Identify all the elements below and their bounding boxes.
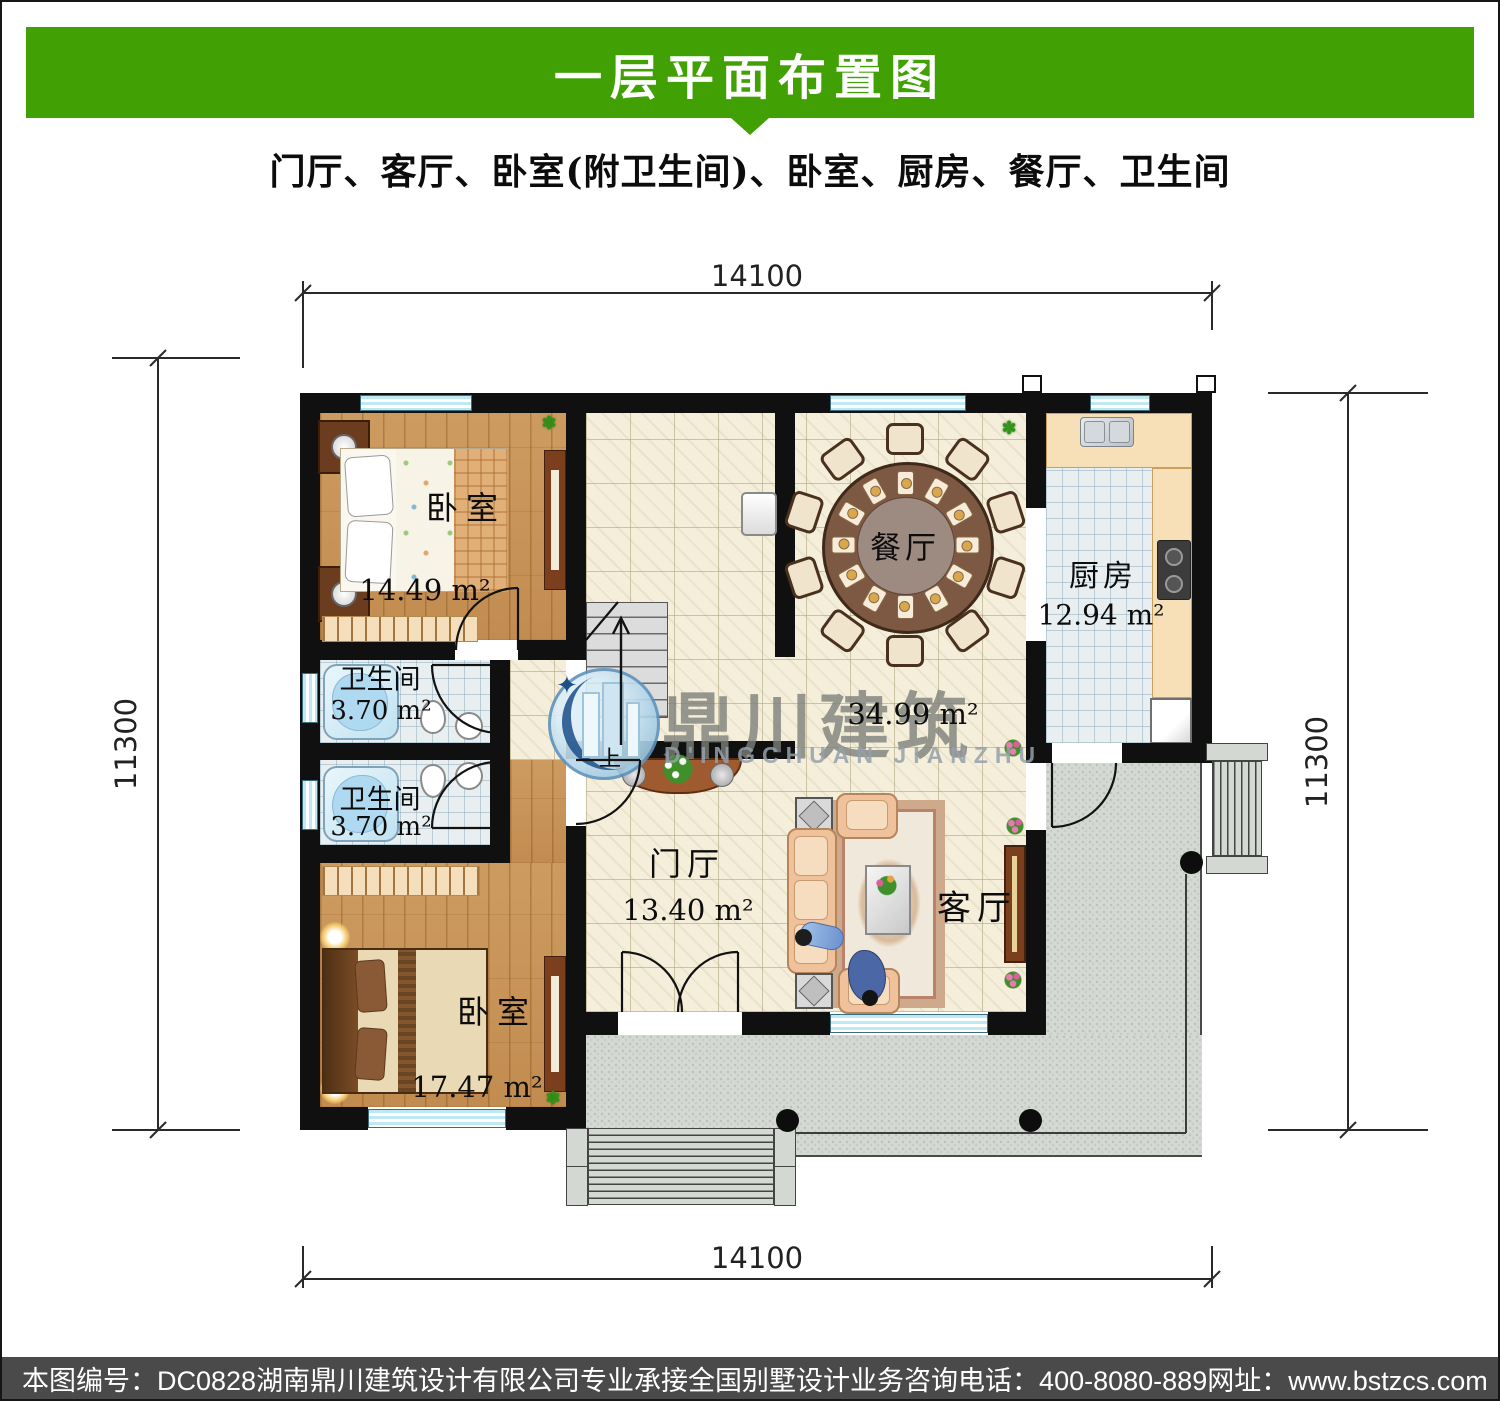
header-bar: 一层平面布置图	[26, 27, 1474, 118]
place-setting	[897, 471, 914, 495]
bedroom2-label: 卧室	[457, 987, 537, 1033]
flower-icon	[1006, 817, 1024, 835]
east-steps	[1212, 761, 1262, 856]
footer-sheet-number: 本图编号：DC0828	[22, 1359, 256, 1398]
pilaster-2	[1196, 375, 1216, 393]
entry-steps-block-right	[774, 1128, 796, 1206]
bath2-label: 卫生间	[340, 778, 421, 817]
entry-steps	[588, 1128, 774, 1205]
bath2-window	[302, 780, 318, 830]
footer-company: 湖南鼎川建筑设计有限公司专业承接全国别墅设计业务	[256, 1359, 904, 1398]
pilaster-1	[1022, 375, 1042, 393]
wall-living-east	[1026, 830, 1046, 1035]
bath1-area: 3.70 m²	[330, 696, 431, 726]
bed-pillow-1	[344, 454, 394, 517]
plant-icon: ✽	[541, 414, 556, 432]
bedroom1-window	[360, 395, 472, 411]
living-label: 客厅	[937, 881, 1017, 930]
tv-cabinet-bedroom2-panel	[551, 976, 559, 1072]
bed-2-pillow-2	[354, 1027, 388, 1081]
watermark-en: D'INGCHUAN JIANZHU	[664, 742, 1042, 769]
wall-south-a	[566, 1012, 618, 1035]
footer-bar: 本图编号：DC0828 湖南鼎川建筑设计有限公司专业承接全国别墅设计业务 咨询电…	[2, 1357, 1498, 1399]
plant-icon: ✽	[545, 1089, 560, 1107]
terrace-column	[1019, 1109, 1042, 1132]
armchair-top-cushion	[846, 800, 888, 830]
wall-south-c	[988, 1012, 1046, 1035]
place-setting	[831, 537, 855, 554]
wall-bath-divider-2	[300, 845, 510, 863]
wall-bedroom2-east	[566, 826, 586, 1130]
entry-steps-block-left	[566, 1128, 588, 1206]
wall-bath-divider-1	[300, 743, 510, 760]
stove-burner-1	[1165, 548, 1183, 566]
fridge	[1150, 698, 1192, 744]
entry-steps-block-right-split	[774, 1166, 796, 1167]
tv-cabinet-bedroom1-panel	[551, 470, 559, 570]
bath1-label: 卫生间	[340, 658, 421, 697]
wall-west	[300, 393, 320, 1130]
wall-dining-west	[775, 413, 795, 657]
dining-window	[830, 395, 966, 411]
entry-steps-block-left-split	[566, 1166, 588, 1167]
header-pointer-triangle	[731, 118, 769, 135]
hall-label: 门厅	[649, 839, 725, 885]
wall-kitchen-south-b	[1122, 743, 1212, 763]
place-setting	[897, 595, 914, 619]
east-steps-cap-top	[1206, 743, 1268, 761]
kitchen-sink-bowl-right	[1109, 421, 1130, 443]
east-steps-cap-bottom	[1206, 856, 1268, 874]
sofa-cushion-1	[794, 836, 828, 876]
page-title: 一层平面布置图	[554, 38, 946, 108]
place-setting	[955, 537, 979, 554]
flower-icon	[1004, 971, 1022, 989]
living-area: 34.99 m²	[847, 697, 978, 731]
dining-label: 餐厅	[870, 523, 940, 568]
wardrobe-1	[322, 616, 478, 642]
dining-chair	[886, 423, 924, 455]
sofa-cushion-2	[794, 880, 828, 920]
room-list-subtitle: 门厅、客厅、卧室(附卫生间)、卧室、厨房、餐厅、卫生间	[0, 143, 1500, 195]
person-lying-head	[795, 929, 812, 946]
person-sitting-head	[862, 990, 878, 1006]
kitchen-sink-bowl-left	[1084, 421, 1105, 443]
wall-south-b	[742, 1012, 830, 1035]
wall-dining-kitchen-a	[1026, 413, 1046, 508]
footer-website: 网址：www.bstzcs.com	[1207, 1359, 1488, 1398]
bedroom1-area: 14.49 m²	[359, 573, 490, 607]
bed-2-pillow-1	[354, 959, 388, 1013]
kitchen-label: 厨房	[1069, 551, 1137, 595]
basin-1	[455, 712, 483, 740]
wardrobe-2	[322, 866, 480, 896]
bedroom2-window	[368, 1109, 506, 1128]
wall-bedroom2-south-b	[506, 1107, 586, 1130]
sparkle-icon: ✦	[556, 670, 578, 701]
dim-right: 11300	[1300, 716, 1334, 808]
terrace-column	[776, 1109, 799, 1132]
dining-chair	[886, 635, 924, 667]
terrace-east	[1046, 763, 1202, 1035]
bedroom2-area: 17.47 m²	[411, 1070, 542, 1104]
water-dispenser	[741, 492, 777, 536]
bedroom1-label: 卧室	[426, 483, 506, 529]
hall-area: 13.40 m²	[622, 893, 753, 927]
basin-2	[455, 762, 483, 790]
dim-top: 14100	[711, 259, 803, 293]
wall-kitchen-east	[1192, 393, 1212, 763]
living-window	[830, 1014, 988, 1033]
wall-bedroom2-south-a	[300, 1107, 368, 1130]
kitchen-window	[1090, 395, 1150, 411]
dim-bottom: 14100	[711, 1241, 803, 1275]
bed-2-headboard	[324, 950, 358, 1092]
plant-icon: ✽	[1001, 419, 1016, 437]
bath1-window	[302, 673, 318, 723]
stove-burner-2	[1165, 575, 1183, 593]
stairs-up-label: 上	[599, 741, 621, 773]
bath2-area: 3.70 m²	[330, 812, 431, 842]
page: 一层平面布置图 门厅、客厅、卧室(附卫生间)、卧室、厨房、餐厅、卫生间	[0, 0, 1500, 1401]
wall-bedroom1-east	[566, 413, 586, 660]
wall-bath-east	[490, 660, 510, 863]
footer-phone: 咨询电话：400-8080-889	[904, 1359, 1207, 1398]
kitchen-area: 12.94 m²	[1038, 599, 1165, 632]
terrace-column	[1180, 851, 1203, 874]
coffee-table-flowers	[869, 870, 905, 896]
wall-bedroom1-south-b	[518, 640, 586, 660]
dim-left: 11300	[109, 698, 143, 790]
